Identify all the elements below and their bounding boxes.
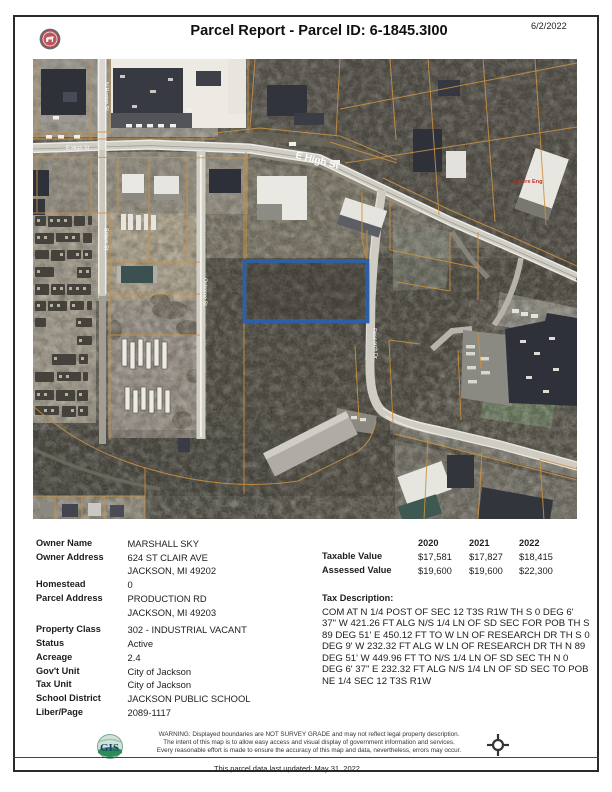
svg-text:Lefere Eng: Lefere Eng: [514, 179, 542, 185]
svg-text:E High St: E High St: [66, 146, 90, 152]
svg-text:N Horton St: N Horton St: [103, 82, 109, 111]
svg-text:GIS: GIS: [100, 742, 119, 754]
svg-text:Research Dr: Research Dr: [371, 328, 378, 359]
svg-text:Osborne St: Osborne St: [202, 278, 208, 306]
svg-text:Brown St: Brown St: [103, 228, 109, 251]
